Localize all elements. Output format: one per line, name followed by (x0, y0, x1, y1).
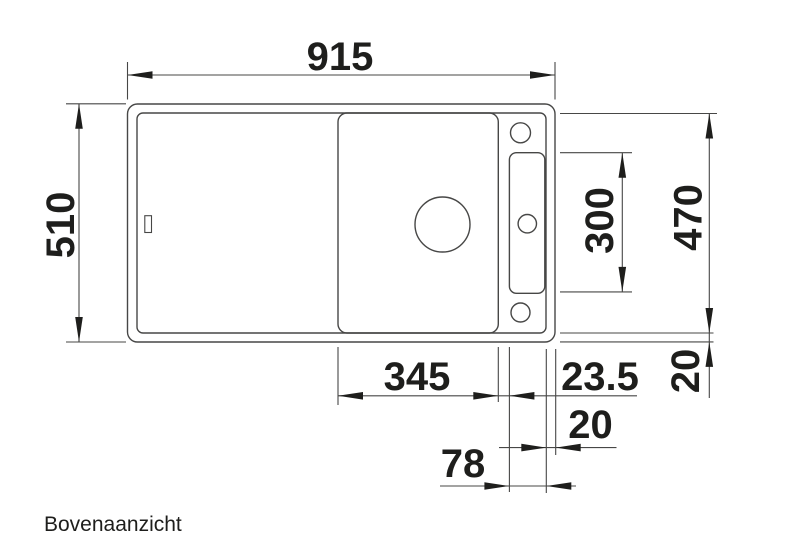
arrowhead (521, 444, 546, 452)
dim-label-ledge-width: 78 (441, 442, 486, 486)
dim-bowl-length-and-gap: 345 23.5 (338, 355, 639, 400)
dim-groove-length: 300 (560, 153, 632, 292)
dim-rim-side: 20 (499, 403, 617, 451)
overflow-mark (145, 216, 152, 233)
dim-label-inner-depth: 470 (667, 184, 711, 251)
arrowhead (706, 114, 714, 139)
sink-rim-inner-edge (137, 113, 546, 333)
drain-hole (415, 197, 470, 252)
arrowhead (484, 482, 509, 490)
dim-label-bowl-length: 345 (384, 355, 451, 399)
dim-label-overall-depth: 510 (39, 192, 83, 259)
arrowhead (619, 267, 627, 292)
dim-label-bowl-groove-gap: 23.5 (561, 355, 639, 399)
tap-hole-bottom (511, 303, 530, 322)
arrowhead (509, 392, 534, 400)
arrowhead (128, 71, 153, 79)
dim-overall-width: 915 (128, 35, 556, 100)
technical-drawing: 915 510 470 300 20 (0, 0, 800, 560)
arrowhead (619, 153, 627, 178)
view-caption: Bovenaanzicht (44, 513, 182, 536)
dim-label-rim-side: 20 (568, 403, 613, 447)
sink-top-view (128, 104, 556, 342)
arrowhead (706, 308, 714, 333)
sink-bowl (338, 113, 498, 333)
arrowhead (473, 392, 498, 400)
accessory-groove (509, 153, 544, 294)
dim-label-overall-width: 915 (307, 35, 374, 79)
tap-hole-middle (518, 215, 536, 233)
tap-hole-top (511, 123, 531, 143)
sink-outer-edge (128, 104, 556, 342)
dim-overall-depth: 510 (39, 104, 126, 342)
drawing-page: 915 510 470 300 20 (0, 0, 800, 560)
dim-label-rim-front: 20 (664, 349, 708, 394)
dim-label-groove-length: 300 (578, 187, 622, 254)
arrowhead (530, 71, 555, 79)
arrowhead (75, 104, 83, 129)
arrowhead (546, 482, 571, 490)
arrowhead (338, 392, 363, 400)
arrowhead (75, 317, 83, 342)
